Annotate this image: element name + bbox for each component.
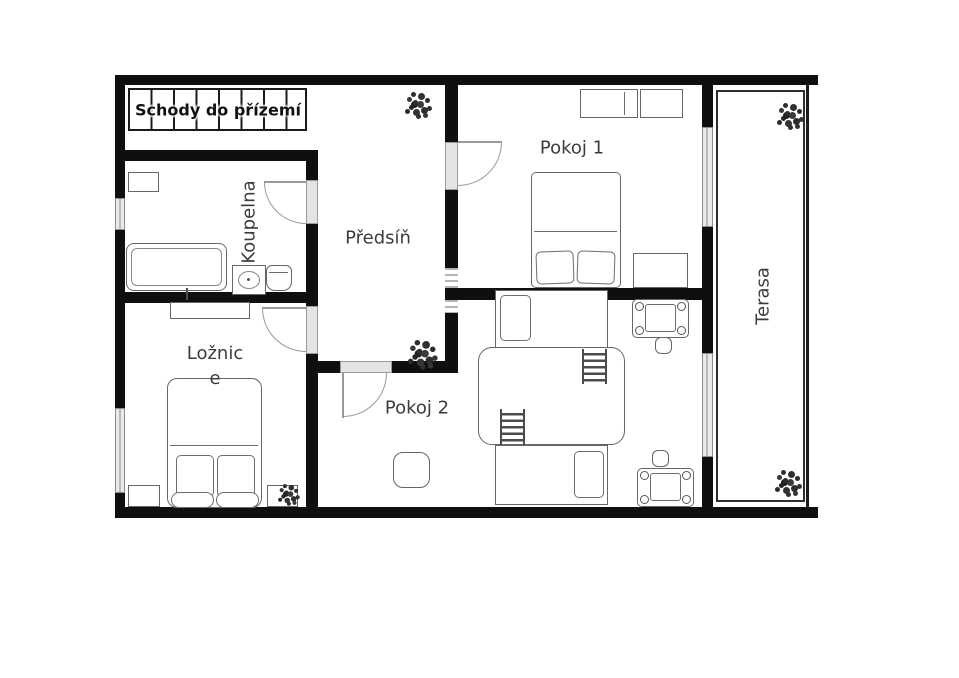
wall-predsin-bottom-b — [392, 361, 458, 373]
window-pokoj2-terrace — [702, 353, 713, 457]
desk-pokoj1 — [633, 253, 688, 288]
wardrobe-a-divider — [624, 92, 625, 115]
stool-round-2 — [652, 450, 669, 467]
wardrobe-b — [640, 89, 683, 118]
wardrobe-a — [580, 89, 638, 118]
armchair-2 — [637, 468, 694, 507]
floor-plan: Schody do přízemí Koupelna Předsíň Pokoj… — [0, 0, 959, 678]
threshold-pokoj2-door — [340, 361, 392, 373]
plant-icon — [413, 100, 418, 105]
toilet-cistern-line — [269, 272, 288, 273]
bed-blanket-line — [170, 445, 258, 446]
nightstand-right — [267, 485, 298, 507]
label-koupelna: Koupelna — [239, 180, 260, 263]
wall-predsin-pokoj1-b — [445, 190, 458, 268]
bathtub — [126, 243, 227, 291]
door-koupelna-leaf — [264, 181, 306, 183]
pillow — [176, 455, 214, 497]
pillow — [500, 295, 531, 341]
stool-round-1 — [655, 337, 672, 354]
armchair-1 — [632, 299, 689, 338]
window-loznice — [115, 408, 125, 493]
bed-blanket-line — [534, 231, 617, 232]
label-pokoj1: Pokoj 1 — [540, 138, 604, 159]
wall-predsin-bottom-a — [318, 361, 340, 373]
plant-icon — [417, 349, 423, 355]
label-loznice: Ložnice — [183, 341, 247, 391]
single-bed-bottom — [495, 445, 608, 505]
double-bed-pokoj1 — [531, 172, 621, 288]
armchair-knob-icon — [640, 495, 649, 504]
wall-predsin-pokoj1-a — [445, 75, 458, 142]
ladder-icon — [500, 409, 525, 445]
armchair-knob-icon — [635, 326, 644, 335]
window-koupelna — [115, 198, 125, 230]
opening-marks-upper — [445, 268, 458, 288]
pillow — [576, 250, 615, 284]
wall-under-stairs — [115, 150, 318, 161]
plant-icon — [785, 111, 790, 116]
door-loznice-arc — [262, 308, 306, 352]
pillow — [574, 451, 604, 498]
armchair-knob-icon — [682, 495, 691, 504]
bolster — [171, 492, 214, 508]
plant-icon — [783, 478, 788, 483]
label-stairs: Schody do přízemí — [135, 101, 301, 120]
door-pokoj2-arc — [343, 373, 387, 417]
pillow — [535, 250, 574, 284]
armchair-knob-icon — [677, 326, 686, 335]
single-bed-top — [495, 290, 608, 348]
bathtub-inner — [131, 248, 222, 286]
nightstand-left — [128, 485, 160, 507]
armchair-knob-icon — [677, 302, 686, 311]
wall-central-vertical-a — [306, 150, 318, 180]
bathroom-shelf — [128, 172, 159, 192]
door-pokoj2-leaf — [342, 373, 344, 418]
label-terasa: Terasa — [753, 267, 774, 325]
toilet — [266, 265, 292, 291]
door-loznice-leaf — [262, 307, 306, 309]
stool-square — [393, 452, 430, 488]
pillow — [217, 455, 255, 497]
door-pokoj1-leaf — [458, 141, 502, 143]
label-pokoj2: Pokoj 2 — [385, 398, 449, 419]
wall-terrace-right — [806, 84, 809, 508]
opening-marks-lower — [445, 300, 458, 313]
threshold-loznice-door — [306, 306, 318, 354]
bathtub-faucet-icon — [186, 288, 188, 300]
bolster — [216, 492, 259, 508]
ladder-icon — [582, 349, 607, 384]
plant-icon — [285, 491, 289, 495]
window-pokoj1-terrace — [702, 127, 713, 227]
door-koupelna-arc — [264, 182, 306, 224]
sink-drain-icon — [247, 278, 250, 281]
door-pokoj1-arc — [458, 142, 502, 186]
sink — [232, 265, 266, 295]
armchair-knob-icon — [635, 302, 644, 311]
armchair-knob-icon — [682, 471, 691, 480]
bedroom-shelf — [170, 302, 250, 319]
double-bed-loznice — [167, 378, 262, 508]
armchair-seat — [645, 304, 676, 332]
threshold-pokoj1-door — [445, 142, 458, 190]
wall-central-vertical-c — [306, 354, 318, 507]
armchair-knob-icon — [640, 471, 649, 480]
armchair-seat — [650, 473, 681, 501]
label-predsin: Předsíň — [345, 228, 411, 249]
threshold-koupelna-door — [306, 180, 318, 224]
